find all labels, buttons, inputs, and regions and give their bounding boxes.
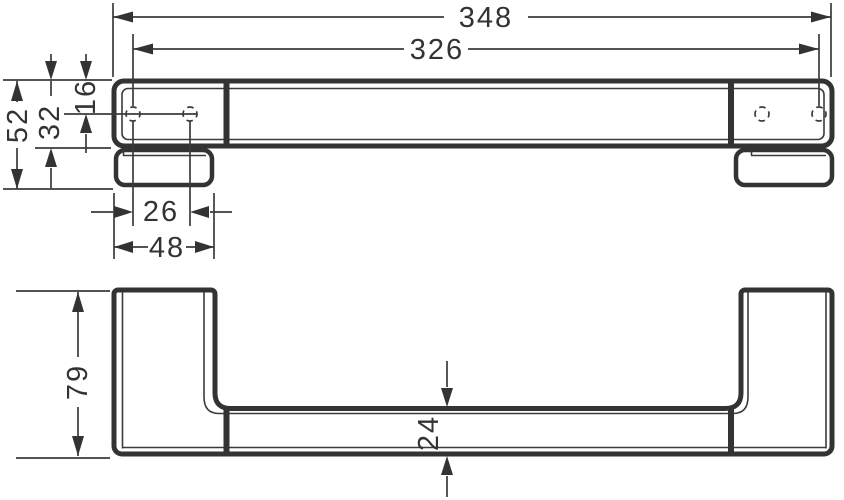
dim-label-hole-span: 326 [410, 34, 464, 66]
dim-label-body-height: 32 [34, 104, 66, 140]
arrowhead [45, 61, 57, 80]
arrowhead [195, 241, 214, 253]
front-elevation-view: 348 326 52 32 16 26 48 [2, 2, 832, 264]
arrowhead [72, 436, 84, 456]
bar-top-inner-line [204, 293, 748, 414]
arrowhead [190, 206, 209, 218]
arrowhead [114, 241, 133, 253]
grab-bar-technical-drawing: 348 326 52 32 16 26 48 79 24 [0, 0, 844, 500]
arrowhead [80, 61, 92, 80]
arrowhead [114, 206, 133, 218]
arrowhead [799, 44, 819, 55]
arrowhead [811, 12, 831, 23]
ext-lines-326 [133, 34, 819, 106]
arrowhead [133, 44, 153, 55]
dim-label-hole-pitch: 26 [143, 196, 179, 228]
dim-label-overall-length: 348 [459, 2, 513, 34]
bar-outline-plan [114, 290, 832, 454]
arrowhead [80, 114, 92, 133]
arrowhead [441, 388, 453, 407]
arrowhead [113, 12, 133, 23]
mounting-hole [755, 107, 769, 121]
technical-drawing-page: 348 326 52 32 16 26 48 79 24 [0, 0, 844, 500]
arrowhead [11, 81, 23, 101]
arrowhead [441, 456, 453, 475]
dim-label-bar-thickness: 24 [413, 415, 445, 451]
arrowhead [45, 148, 57, 167]
plan-view: 79 24 [16, 290, 832, 497]
dim-label-plate-width: 48 [149, 232, 185, 264]
dim-label-total-height: 52 [2, 107, 34, 143]
dim-label-edge-to-hole-axis: 16 [70, 79, 102, 115]
bar-outline-front [114, 81, 832, 146]
arrowhead [72, 292, 84, 312]
arrowhead [11, 169, 23, 189]
dim-label-depth: 79 [62, 364, 94, 400]
